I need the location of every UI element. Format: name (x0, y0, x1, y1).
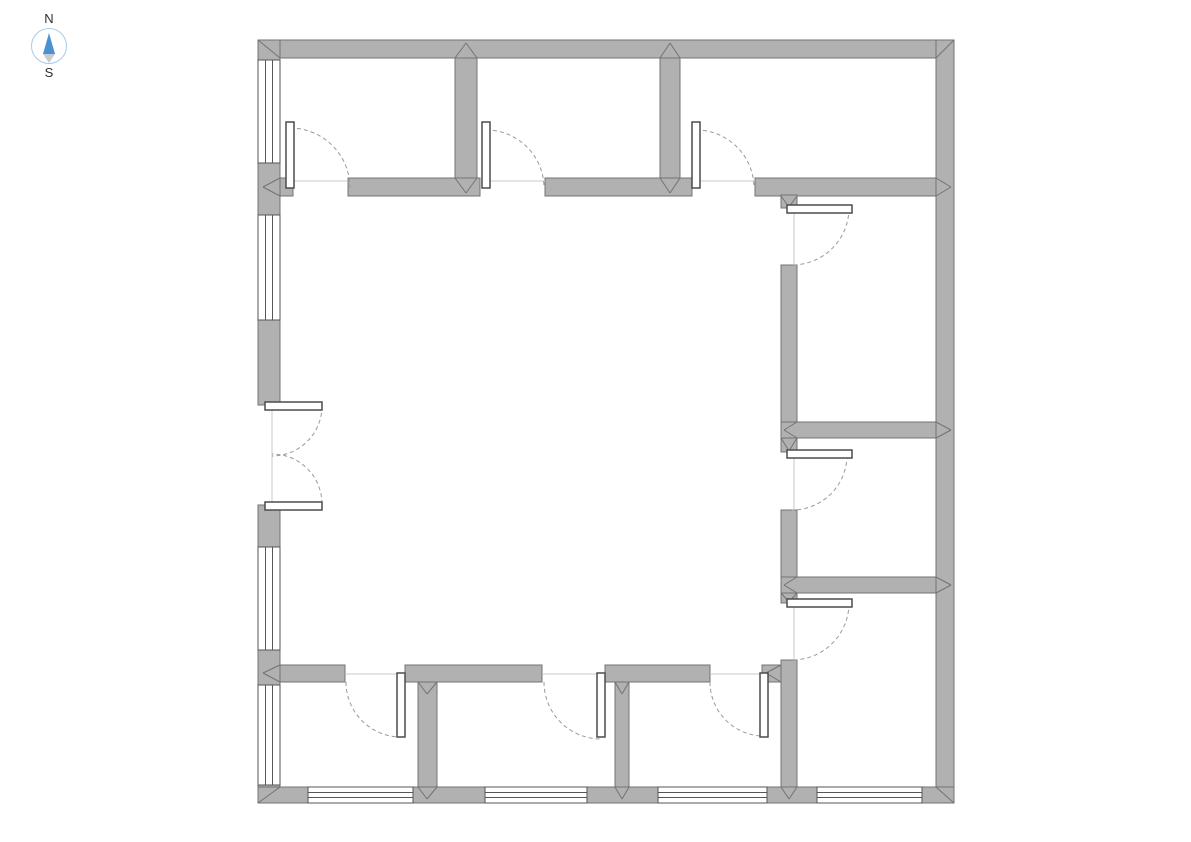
wall-segment (418, 682, 437, 787)
window (258, 215, 280, 320)
wall-segment (348, 178, 480, 196)
door-swing-arc (792, 208, 849, 265)
wall-segment (615, 682, 629, 787)
door-leaf (787, 450, 852, 458)
compass-south-label: S (45, 65, 54, 81)
wall-segment (587, 787, 658, 803)
wall-segment (781, 510, 797, 577)
compass-south-needle-icon (43, 54, 55, 63)
door-leaf (265, 502, 322, 510)
window (658, 787, 767, 803)
door-swing-arc (272, 406, 322, 456)
compass-north-needle-icon (43, 33, 55, 54)
wall-segment (936, 40, 954, 803)
compass-circle-icon (31, 28, 67, 64)
wall-segment (258, 163, 280, 215)
wall-segment (405, 665, 542, 682)
door-swing-arc (272, 454, 322, 504)
wall-segment (258, 505, 280, 547)
door-swing-arc (346, 682, 401, 737)
door-leaves-layer (265, 122, 852, 737)
compass-north-label: N (44, 11, 53, 27)
door-leaf (265, 402, 322, 410)
window (485, 787, 587, 803)
wall-segment (781, 265, 797, 438)
wall-segment (755, 178, 936, 196)
door-leaf (692, 122, 700, 188)
window (817, 787, 922, 803)
opening-lines-layer (272, 181, 794, 674)
wall-segment (660, 58, 680, 178)
wall-segment (258, 787, 308, 803)
wall-segment (258, 40, 954, 58)
door-swing-arc (696, 130, 754, 188)
door-swing-arc (290, 128, 350, 188)
walls-layer (258, 40, 954, 803)
door-swing-arc (486, 130, 544, 188)
window (308, 787, 413, 803)
door-leaf (482, 122, 490, 188)
wall-segment (781, 422, 936, 438)
door-leaf (760, 673, 768, 737)
door-leaf (597, 673, 605, 737)
floor-plan-canvas[interactable]: N S (0, 0, 1191, 842)
wall-segment (280, 665, 345, 682)
wall-segment (605, 665, 710, 682)
wall-segment (455, 58, 477, 178)
door-leaf (286, 122, 294, 188)
compass-rose: N S (29, 11, 69, 81)
door-swing-arc (544, 682, 601, 739)
door-leaf (397, 673, 405, 737)
window (258, 547, 280, 650)
wall-segment (781, 577, 936, 593)
door-arcs-layer (272, 128, 849, 739)
door-leaf (787, 205, 852, 213)
wall-segment (258, 320, 280, 405)
door-swing-arc (710, 682, 764, 736)
window (258, 685, 280, 785)
wall-segment (545, 178, 692, 196)
floor-plan-drawing (0, 0, 1191, 842)
window (258, 60, 280, 163)
door-swing-arc (792, 455, 847, 510)
wall-segment (781, 660, 797, 787)
door-swing-arc (792, 603, 849, 660)
door-leaf (787, 599, 852, 607)
